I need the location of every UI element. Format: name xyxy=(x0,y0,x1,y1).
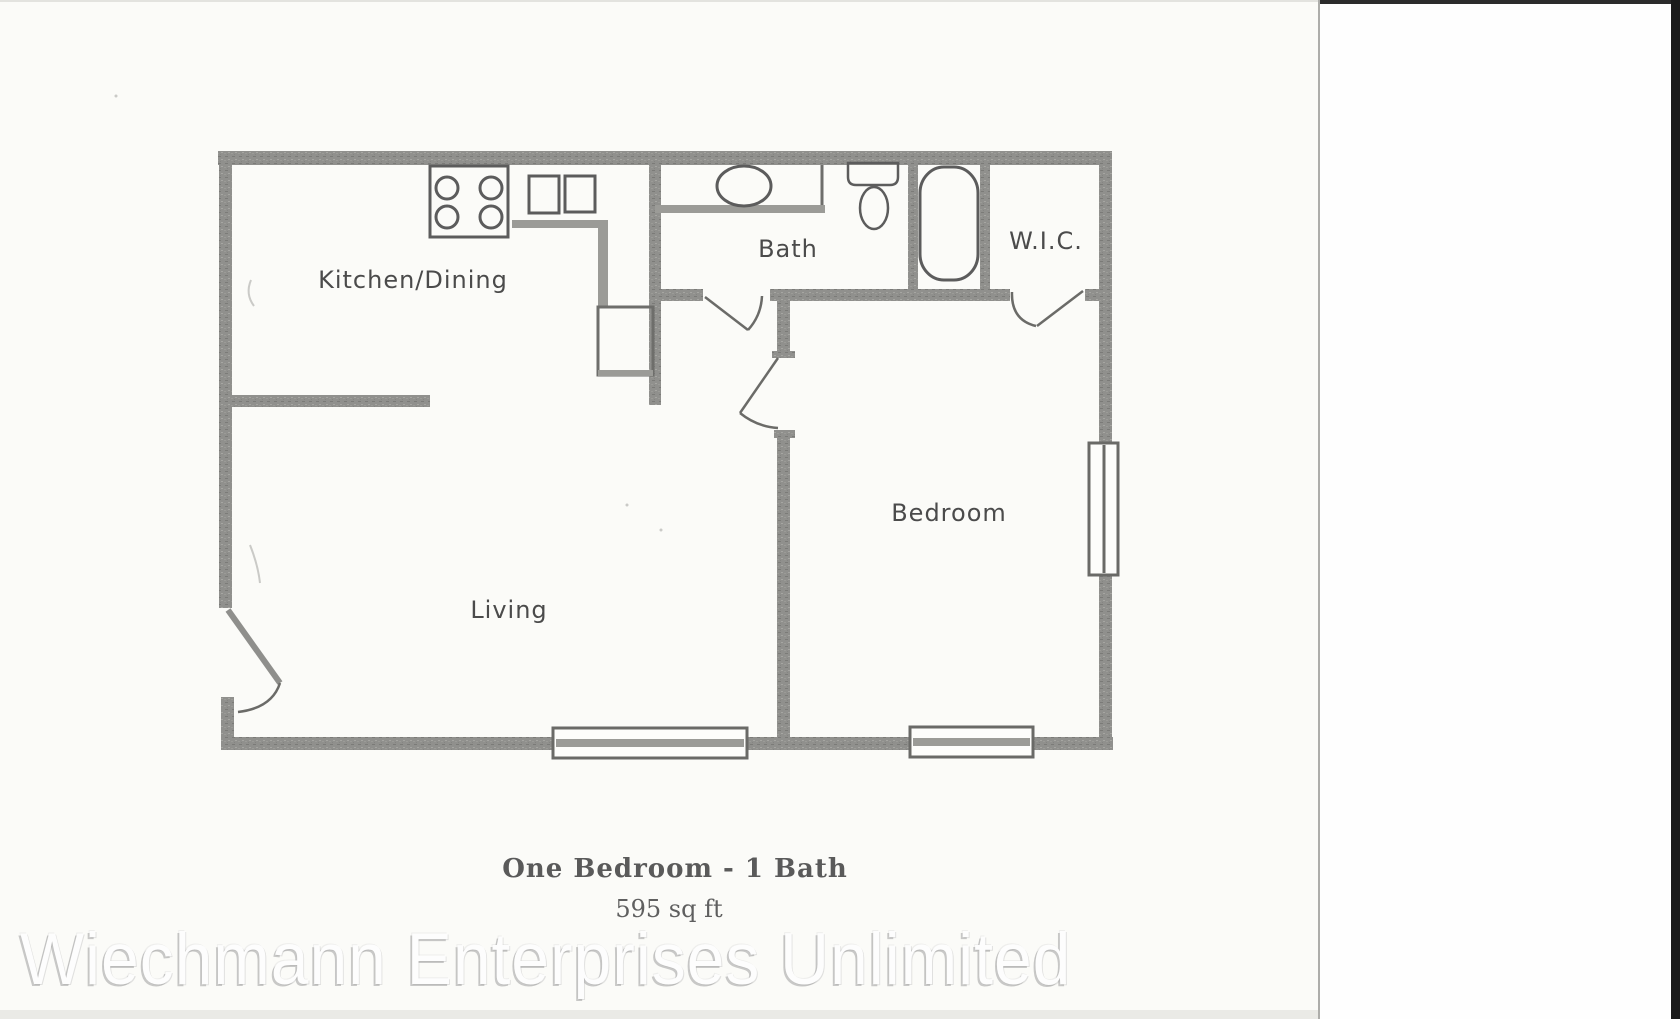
scanner-edge-strip xyxy=(1671,0,1680,1019)
stove-icon xyxy=(430,166,508,237)
wall-segment xyxy=(218,151,1112,165)
wall-segment xyxy=(777,299,790,358)
wall-segment xyxy=(980,163,990,291)
room-label-wic: W.I.C. xyxy=(1009,227,1083,255)
watermark-text: Wiechmann Enterprises Unlimited xyxy=(20,922,1071,998)
room-label-bath: Bath xyxy=(758,235,818,263)
wall-segment xyxy=(918,289,1010,301)
toilet-icon xyxy=(848,163,898,229)
bathtub-icon xyxy=(920,167,978,280)
wall-segment xyxy=(219,151,232,608)
kitchen-sink-icon xyxy=(529,176,595,213)
window-bedroom-side xyxy=(1089,443,1118,575)
room-label-living: Living xyxy=(470,596,547,624)
wall-segment xyxy=(221,737,553,750)
pantry-closet xyxy=(598,307,653,376)
wall-segment xyxy=(770,289,918,301)
wall-segment xyxy=(1099,575,1112,750)
room-label-kitchen-dining: Kitchen/Dining xyxy=(318,266,508,294)
room-label-bedroom: Bedroom xyxy=(891,499,1007,527)
kitchen-counter xyxy=(512,220,608,308)
plan-title: One Bedroom - 1 Bath xyxy=(502,854,848,884)
wall-segment xyxy=(747,737,910,750)
window-bedroom xyxy=(910,727,1033,757)
scan-white-margin xyxy=(1320,0,1671,1019)
entry-door-swing xyxy=(228,610,280,712)
wall-segment xyxy=(221,697,234,743)
window-living xyxy=(553,728,747,758)
wall-segment xyxy=(772,351,795,358)
vanity-sink-icon xyxy=(717,166,771,206)
wall-segment xyxy=(908,163,918,291)
bath-vanity xyxy=(655,165,825,213)
wall-segment xyxy=(649,165,661,405)
wall-segment xyxy=(221,395,430,407)
wall-segment xyxy=(777,433,790,737)
bath-door-swing xyxy=(705,296,762,330)
wall-segment xyxy=(1085,289,1099,301)
wall-segment xyxy=(774,430,795,438)
scan-specks xyxy=(115,95,663,584)
bedroom-door-swing xyxy=(740,358,778,428)
wic-door-swing xyxy=(1012,291,1083,326)
scanned-floorplan-image: Kitchen/Dining Bath W.I.C. Bedroom Livin… xyxy=(0,0,1680,1019)
wall-segment xyxy=(1099,151,1112,443)
wall-segment xyxy=(660,289,703,301)
